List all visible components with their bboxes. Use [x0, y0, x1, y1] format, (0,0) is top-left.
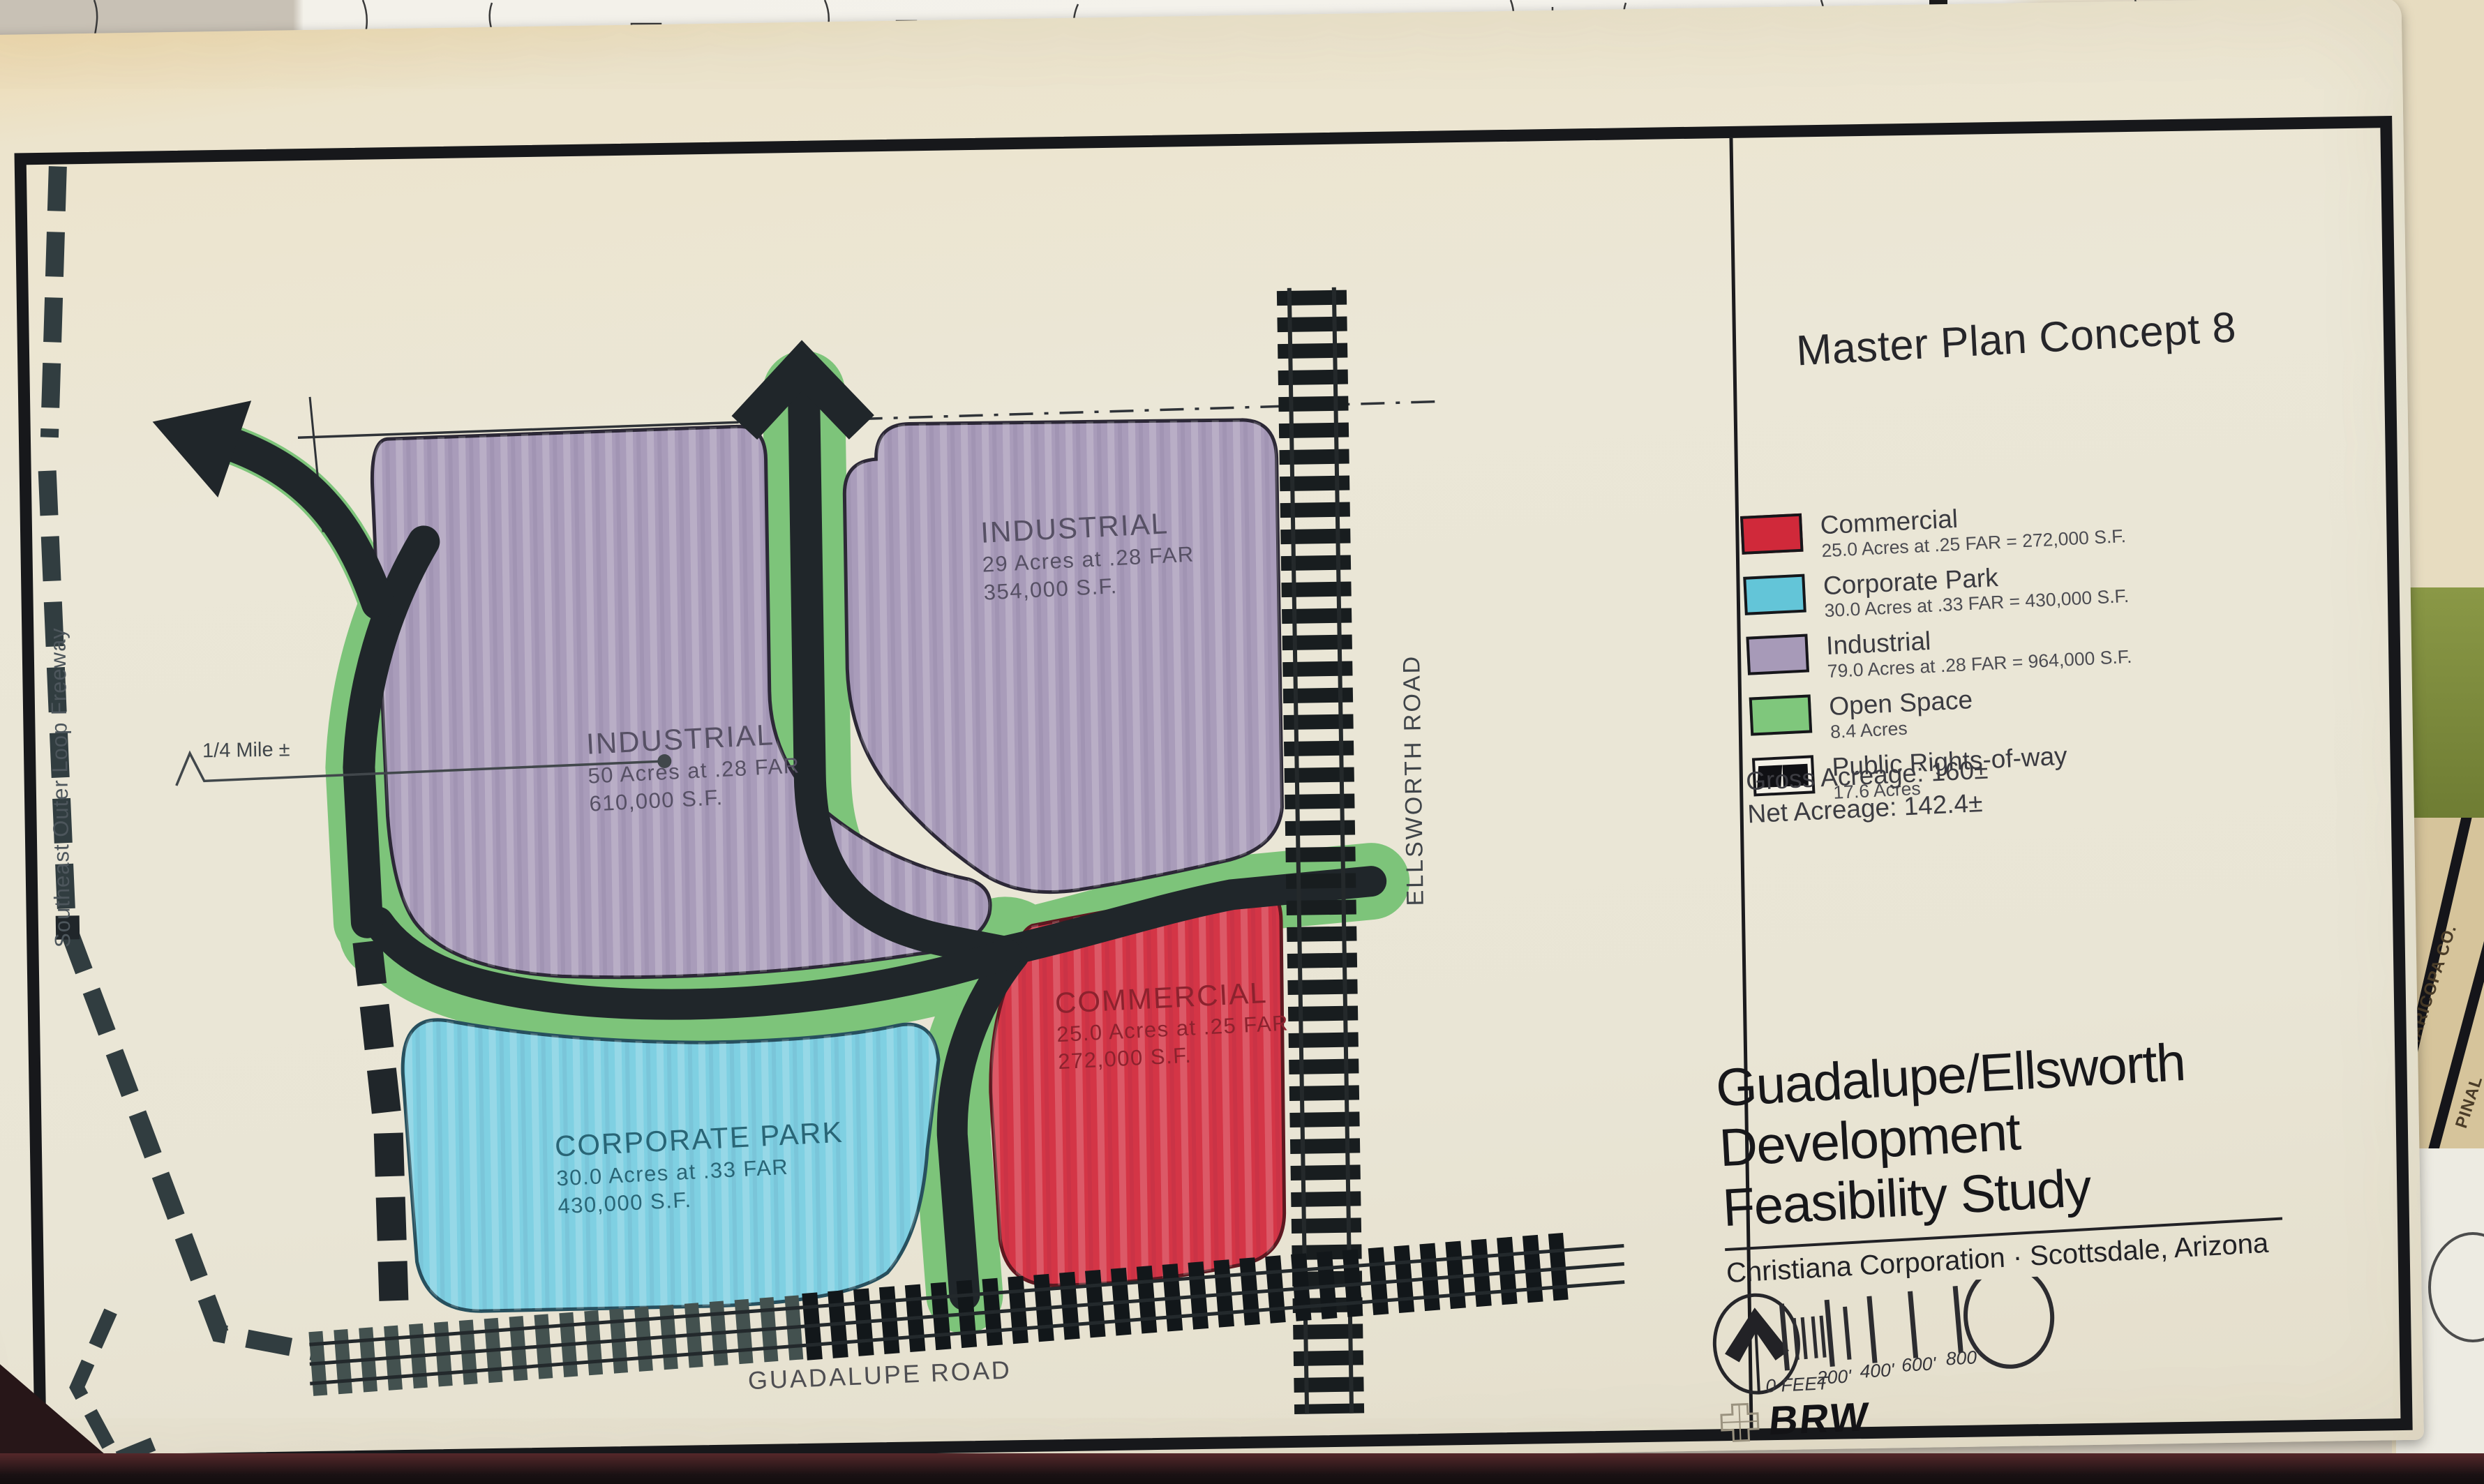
- firm-logo: BRW: [1716, 1393, 1870, 1446]
- brw-logo-text: BRW: [1767, 1393, 1871, 1444]
- acreage-summary: Gross Acreage: 160± Net Acreage: 142.4±: [1745, 753, 1991, 831]
- legend-item-industrial: Industrial 79.0 Acres at .28 FAR = 964,0…: [1746, 618, 2132, 687]
- scale-label-600: 600': [1901, 1353, 1936, 1376]
- open-space-swatch: [1749, 695, 1813, 736]
- legend-item-corporate-park: Corporate Park 30.0 Acres at .33 FAR = 4…: [1743, 558, 2130, 627]
- scale-bar: 0 FEET 200' 400' 600' 800': [1708, 1273, 2111, 1416]
- board-tilt-wrapper: INDUSTRIAL 50 Acres at .28 FAR 610,000 S…: [0, 0, 2484, 1484]
- commercial-swatch: [1740, 514, 1804, 555]
- photo-bottom-edge: [0, 1453, 2484, 1484]
- photographed-plan-board: MARICOPA CO. PINAL: [0, 0, 2484, 1484]
- scale-label-400: 400': [1860, 1359, 1895, 1382]
- brw-cross-icon: [1716, 1399, 1763, 1446]
- scale-label-200: 200': [1816, 1365, 1852, 1388]
- corporate-park-swatch: [1743, 574, 1806, 615]
- scale-label-800: 800': [1945, 1347, 1981, 1370]
- project-title-block: Guadalupe/Ellsworth Development Feasibil…: [1714, 1028, 2284, 1289]
- industrial-swatch: [1746, 634, 1809, 675]
- legend-item-open-space: Open Space 8.4 Acres: [1749, 679, 2136, 747]
